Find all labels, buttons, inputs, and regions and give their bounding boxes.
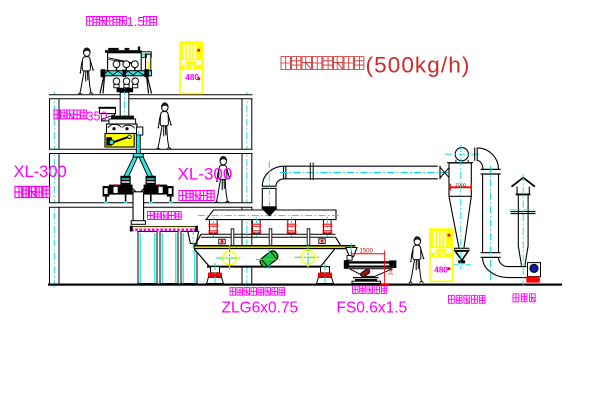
svg-text:(500kg/h): (500kg/h)	[366, 53, 471, 78]
svg-text:1500: 1500	[360, 249, 374, 255]
svg-text:ZLG6x0.75: ZLG6x0.75	[222, 300, 299, 317]
svg-text:350: 350	[87, 110, 108, 124]
svg-text:341: 341	[388, 266, 394, 275]
svg-text:XL-300: XL-300	[178, 165, 233, 184]
svg-text:480: 480	[434, 265, 448, 274]
svg-text:480: 480	[185, 73, 199, 82]
svg-text:XL-300: XL-300	[14, 163, 67, 181]
svg-text:1.5: 1.5	[127, 14, 145, 29]
svg-text:FS0.6x1.5: FS0.6x1.5	[337, 300, 408, 317]
